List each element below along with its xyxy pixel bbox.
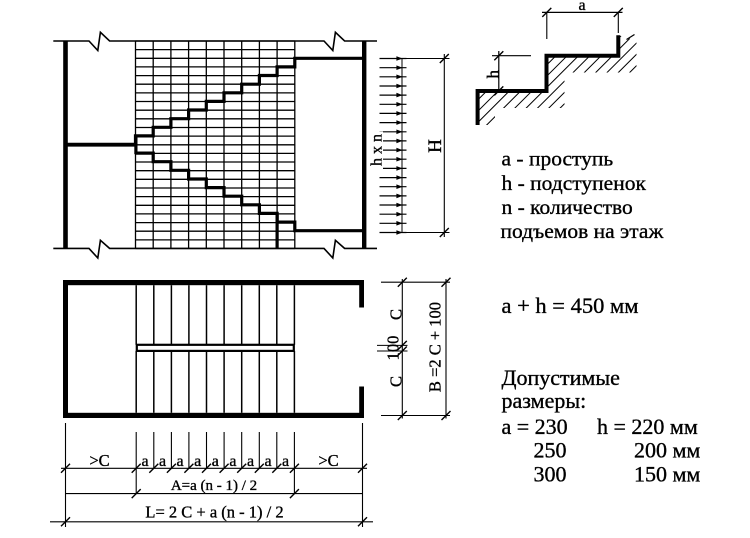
- svg-text:n - количество: n - количество: [502, 195, 633, 219]
- svg-text:a: a: [229, 453, 236, 470]
- svg-text:a: a: [247, 453, 254, 470]
- svg-text:a + h = 450 мм: a + h = 450 мм: [502, 293, 639, 318]
- svg-text:a: a: [578, 0, 585, 14]
- svg-text:L= 2 C + a (n - 1) / 2: L= 2 C + a (n - 1) / 2: [145, 502, 283, 521]
- svg-text:a: a: [177, 453, 184, 470]
- svg-text:a = 230: a = 230: [502, 414, 568, 439]
- svg-text:a: a: [141, 453, 148, 470]
- svg-text:150 мм: 150 мм: [634, 461, 700, 486]
- svg-text:h x n: h x n: [369, 134, 386, 166]
- svg-text:h - подступенок: h - подступенок: [502, 171, 647, 195]
- svg-text:100: 100: [384, 336, 403, 361]
- svg-text:B =2 C + 100: B =2 C + 100: [426, 302, 445, 392]
- svg-text:H: H: [425, 139, 446, 153]
- svg-text:>C: >C: [89, 451, 109, 470]
- svg-text:C: C: [387, 309, 406, 320]
- svg-text:a: a: [159, 453, 166, 470]
- svg-text:250: 250: [534, 438, 567, 463]
- svg-text:a: a: [282, 453, 289, 470]
- svg-text:300: 300: [534, 461, 567, 486]
- svg-text:C: C: [387, 376, 406, 387]
- svg-text:h = 220 мм: h = 220 мм: [597, 414, 698, 439]
- svg-text:размеры:: размеры:: [502, 388, 587, 413]
- svg-text:>C: >C: [318, 451, 338, 470]
- svg-text:a: a: [194, 453, 201, 470]
- svg-text:200 мм: 200 мм: [634, 438, 700, 463]
- svg-text:подъемов на этаж: подъемов на этаж: [501, 219, 664, 243]
- svg-text:Допустимые: Допустимые: [502, 365, 620, 390]
- svg-text:h: h: [483, 69, 502, 78]
- svg-text:A=a (n - 1) / 2: A=a (n - 1) / 2: [171, 478, 257, 494]
- svg-text:a: a: [212, 453, 219, 470]
- svg-text:a - проступь: a - проступь: [502, 147, 614, 171]
- svg-text:a: a: [264, 453, 271, 470]
